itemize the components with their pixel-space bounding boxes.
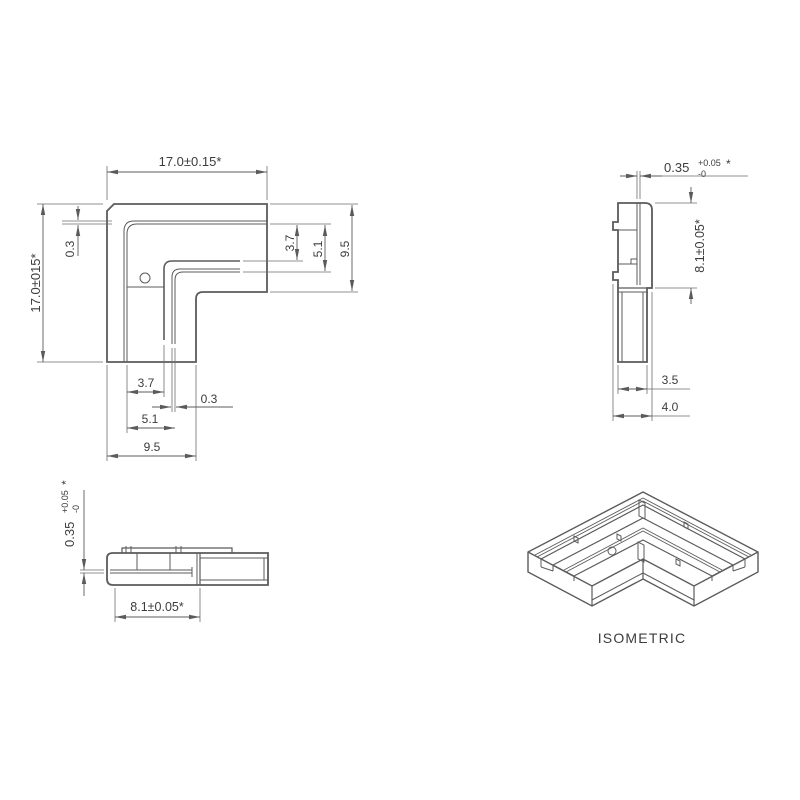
front-view: 0.35+0.05-0*8.1±0.05* (59, 480, 268, 622)
clip-step (631, 259, 637, 264)
dimension-label: 3.7 (283, 234, 297, 251)
dimension-label-part: * (726, 157, 731, 171)
dimension-label: 0.3 (201, 392, 218, 406)
dimension-label: 8.1±0.05* (130, 600, 184, 614)
dimension-label-part: 0.35 (664, 160, 689, 175)
dimension-label-part: -0 (71, 505, 81, 513)
side-view: 0.35+0.05-0*8.1±0.05*3.54.0 (613, 157, 748, 421)
drawing-page: 17.0±0.15*17.0±015*0.33.75.19.53.70.35.1… (0, 0, 800, 800)
dimension-label: 0.35+0.05-0* (59, 480, 81, 547)
dimension-label-part: +0.05 (698, 158, 721, 168)
dimension-label: 5.1 (142, 412, 159, 426)
dimension-label-part: * (59, 480, 73, 485)
dimension-label: 0.3 (63, 240, 77, 257)
dimension-label: 9.5 (338, 240, 352, 257)
dimension-label: 4.0 (662, 400, 679, 414)
outer-outline (107, 204, 267, 362)
outer-outline (613, 203, 652, 362)
hole (140, 273, 150, 283)
dimension-label: 9.5 (144, 440, 161, 454)
silhouette (528, 492, 758, 606)
top-view: 17.0±0.15*17.0±015*0.33.75.19.53.70.35.1… (28, 154, 358, 461)
slot-b-outer-line (172, 269, 240, 344)
dimension-label-part: 0.35 (62, 522, 77, 547)
dimension-label: 3.5 (662, 373, 679, 387)
dimension-label: 8.1±0.05* (693, 219, 707, 273)
dimension-label: 5.1 (311, 240, 325, 257)
isometric-view: ISOMETRIC (528, 492, 758, 646)
dimension-label-part: -0 (698, 169, 706, 179)
views-root: 17.0±0.15*17.0±015*0.33.75.19.53.70.35.1… (28, 154, 758, 646)
slot-b-inner-line (175, 272, 240, 344)
dimension-label: 17.0±0.15* (159, 154, 222, 169)
view-caption: ISOMETRIC (598, 630, 687, 646)
technical-drawing-canvas: 17.0±0.15*17.0±015*0.33.75.19.53.70.35.1… (0, 0, 800, 800)
slot-a-inner-line (127, 224, 267, 362)
dimension-label-part: +0.05 (60, 490, 70, 513)
dimension-label: 3.7 (138, 376, 155, 390)
dimension-label: 17.0±015* (28, 253, 43, 312)
